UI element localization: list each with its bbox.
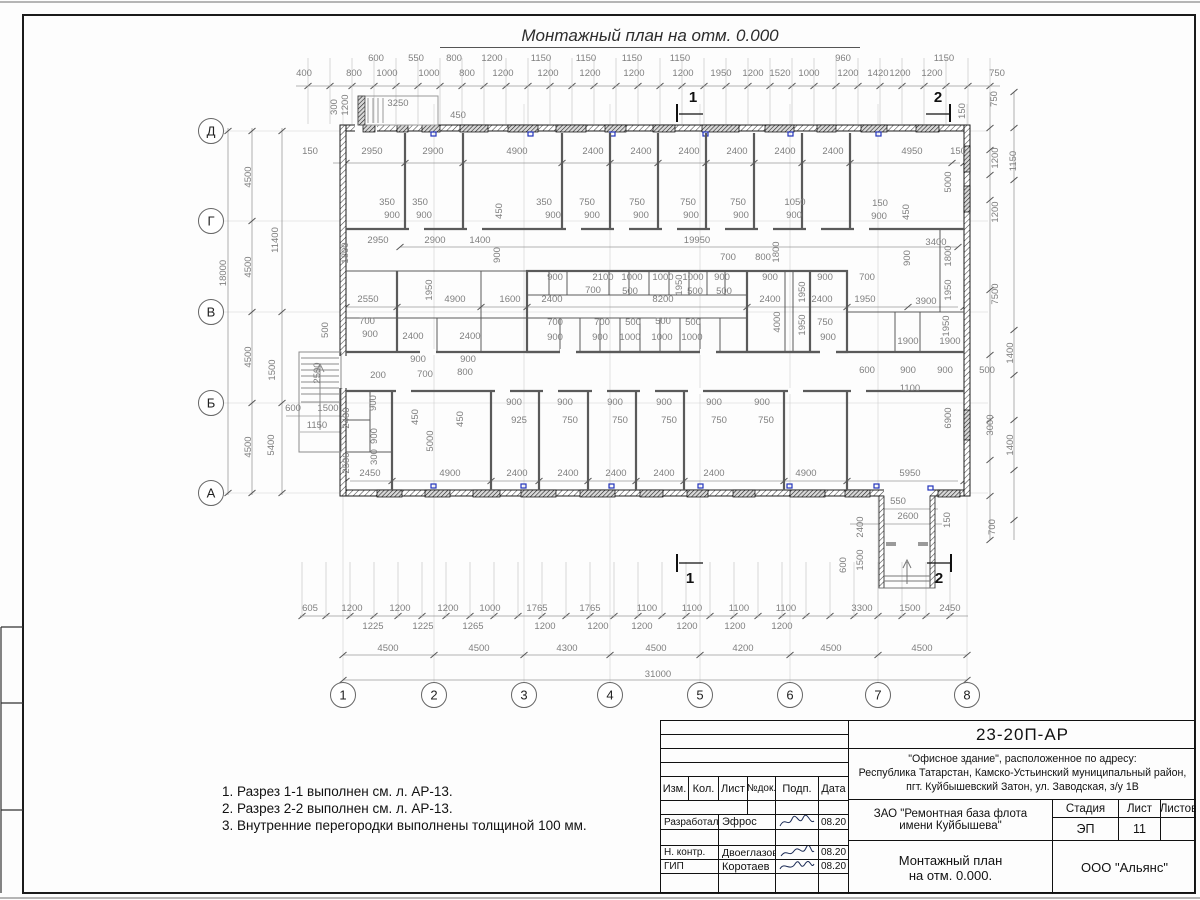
- dimension-label: 900: [786, 210, 802, 221]
- dimension-label: 2450: [359, 468, 380, 479]
- dimension-label: 2900: [424, 235, 445, 246]
- dimension-label: 200: [370, 370, 386, 381]
- dimension-label: 1500: [899, 603, 920, 614]
- dimension-label: 900: [633, 210, 649, 221]
- dimension-label: 450: [494, 203, 505, 219]
- signer-name: Эфрос: [719, 815, 776, 830]
- dimension-label: 1200: [389, 603, 410, 614]
- dimension-label: 900: [416, 210, 432, 221]
- dimension-label: 700: [720, 252, 736, 263]
- client-name: ЗАО "Ремонтная база флота имени Куйбышев…: [849, 800, 1053, 841]
- dimension-label: 900: [362, 329, 378, 340]
- dimension-label: 2400: [630, 146, 651, 157]
- signature-scribble: [778, 815, 816, 829]
- signature: [776, 846, 819, 860]
- dimension-label: 500: [622, 286, 638, 297]
- dimension-label: 3000: [985, 414, 996, 435]
- dimension-label: 900: [492, 247, 503, 263]
- stage-value: ЭП: [1053, 818, 1119, 841]
- dimension-label: 700: [594, 317, 610, 328]
- dimension-label: 1000: [652, 272, 673, 283]
- dimension-label: 1950: [943, 279, 954, 300]
- dimension-label: 1200: [990, 201, 1001, 222]
- dimension-label: 2400: [459, 331, 480, 342]
- dimension-label: 900: [754, 397, 770, 408]
- address-line: Республика Татарстан, Камско-Устьинский …: [859, 767, 1187, 781]
- signer-role: Н. контр.: [661, 846, 719, 860]
- dimension-label: 1600: [499, 294, 520, 305]
- axis-label: 1: [339, 688, 346, 703]
- dimension-label: 900: [900, 365, 916, 376]
- dimension-label: 1000: [376, 68, 397, 79]
- dimension-label: 1200: [742, 68, 763, 79]
- interior-partitions: [346, 133, 964, 490]
- signature-scribble: [778, 860, 816, 873]
- dimension-label: 4200: [732, 643, 753, 654]
- dimension-label: 2550: [357, 294, 378, 305]
- dimension-label: 1800: [771, 241, 782, 262]
- dimension-label: 1800: [340, 242, 351, 263]
- dimension-label: 900: [607, 397, 623, 408]
- dimension-label: 2400: [605, 468, 626, 479]
- dimension-label: 1200: [341, 603, 362, 614]
- signature-scribble: [778, 846, 816, 859]
- col-ndok: №док.: [748, 777, 776, 801]
- dimension-label: 1150: [670, 53, 690, 64]
- dimension-label: 700: [987, 519, 998, 535]
- dimension-label: 600: [838, 557, 849, 573]
- dimension-label: 4900: [795, 468, 816, 479]
- note-line: 3. Внутренние перегородки выполнены толщ…: [222, 818, 587, 835]
- dimension-label: 8200: [652, 294, 673, 305]
- dimension-label: 2400: [653, 468, 674, 479]
- dimension-label: 4500: [911, 643, 932, 654]
- dimension-label: 1400: [1005, 434, 1016, 455]
- dimension-label: 750: [730, 197, 746, 208]
- dimension-label: 5000: [943, 171, 954, 192]
- dimension-label: 1200: [990, 147, 1001, 168]
- dimension-label: 1200: [537, 68, 558, 79]
- dimension-label: 450: [901, 204, 912, 220]
- drawing-sheet: { "sheet": { "title": "Монтажный план на…: [0, 0, 1200, 900]
- dimension-label: 800: [457, 367, 473, 378]
- axis-label: 5: [696, 688, 703, 703]
- dimension-label: 4500: [645, 643, 666, 654]
- document-number: 23-20П-АР: [849, 721, 1196, 749]
- dimension-label: 1400: [1005, 342, 1016, 363]
- dimension-label: 900: [733, 210, 749, 221]
- dimension-label: 2400: [341, 407, 352, 428]
- axis-label: 2: [430, 688, 437, 703]
- signer-date: 08.20: [819, 860, 849, 874]
- dimension-label: 1225: [412, 621, 433, 632]
- dimension-label: 1950: [854, 294, 875, 305]
- dimension-label: 1000: [418, 68, 439, 79]
- dimension-label: 450: [410, 409, 421, 425]
- dimension-label: 900: [592, 332, 608, 343]
- plan-title: Монтажный план на отм. 0.000: [440, 26, 860, 48]
- dimension-label: 2400: [678, 146, 699, 157]
- dimension-label: 1000: [681, 332, 702, 343]
- dimension-label: 31000: [645, 669, 671, 680]
- signature: [776, 815, 819, 830]
- dimension-label: 900: [368, 395, 379, 411]
- dimension-label: 1800: [943, 245, 954, 266]
- signer-name: Коротаев: [719, 860, 776, 874]
- client-line: ЗАО "Ремонтная база флота: [874, 808, 1027, 820]
- sheets-header: Листов: [1161, 800, 1196, 818]
- dimension-label: 750: [989, 68, 1005, 79]
- section-mark-label: 1: [689, 89, 697, 106]
- dimension-label: 350: [379, 197, 395, 208]
- dimension-label: 2400: [855, 516, 866, 537]
- dimension-label: 750: [989, 91, 1000, 107]
- dimension-label: 1100: [682, 603, 702, 614]
- dimension-label: 900: [410, 354, 426, 365]
- note-line: 2. Разрез 2-2 выполнен см. л. АР-13.: [222, 801, 587, 818]
- dimension-label: 1100: [729, 603, 749, 614]
- dimension-label: 750: [579, 197, 595, 208]
- dimension-label: 1200: [579, 68, 600, 79]
- dimension-label: 1950: [674, 274, 685, 295]
- dimension-label: 900: [547, 332, 563, 343]
- dimension-label: 2400: [582, 146, 603, 157]
- notes-block: 1. Разрез 1-1 выполнен см. л. АР-13. 2. …: [222, 784, 587, 835]
- dimension-label: 2400: [402, 331, 423, 342]
- dimension-label: 700: [417, 369, 433, 380]
- dimension-label: 1765: [579, 603, 600, 614]
- dimension-label: 900: [714, 272, 730, 283]
- dimension-label: 3900: [915, 296, 936, 307]
- dimension-label: 1150: [531, 53, 551, 64]
- dimension-label: 2450: [939, 603, 960, 614]
- dimension-label: 700: [859, 272, 875, 283]
- dimension-label: 4500: [243, 166, 254, 187]
- dimension-label: 1200: [889, 68, 910, 79]
- address-line: "Офисное здание", расположенное по адрес…: [908, 753, 1136, 767]
- dimension-label: 1100: [637, 603, 657, 614]
- dimension-label: 150: [302, 146, 318, 157]
- dimension-label: 960: [835, 53, 851, 64]
- dimension-label: 900: [545, 210, 561, 221]
- dimension-label: 150: [872, 198, 888, 209]
- dimension-label: 1200: [921, 68, 942, 79]
- dimension-label: 1200: [534, 621, 555, 632]
- dimension-label: 4500: [243, 256, 254, 277]
- dimension-label: 750: [629, 197, 645, 208]
- dimension-label: 4500: [820, 643, 841, 654]
- dimension-label: 800: [459, 68, 475, 79]
- dimension-label: 900: [506, 397, 522, 408]
- dimension-label: 900: [384, 210, 400, 221]
- dimension-label: 500: [716, 286, 732, 297]
- dimension-label: 2600: [897, 511, 918, 522]
- signer-date: 08.20: [819, 815, 849, 830]
- dimension-label: 2100: [592, 272, 613, 283]
- dimension-label: 4500: [243, 346, 254, 367]
- col-izm: Изм.: [661, 777, 689, 801]
- dimension-label: 1265: [462, 621, 483, 632]
- dimension-label: 1200: [672, 68, 693, 79]
- dimension-label: 5950: [899, 468, 920, 479]
- dimension-label: 2950: [367, 235, 388, 246]
- signature: [776, 860, 819, 874]
- dimension-label: 750: [711, 415, 727, 426]
- dimension-label: 150: [942, 512, 953, 528]
- section-mark-label: 2: [934, 89, 942, 106]
- dimension-label: 1200: [676, 621, 697, 632]
- dimension-label: 2400: [506, 468, 527, 479]
- dimension-label: 18000: [218, 260, 229, 286]
- dimension-label: 900: [547, 272, 563, 283]
- dimension-label: 1200: [340, 94, 351, 115]
- dimension-label: 1150: [307, 420, 327, 431]
- dimension-label: 1500: [855, 549, 866, 570]
- dimension-label: 1200: [437, 603, 458, 614]
- door-markers: [431, 132, 933, 490]
- dimension-label: 4900: [439, 468, 460, 479]
- dimension-label: 1100: [776, 603, 796, 614]
- dimension-label: 925: [511, 415, 527, 426]
- dimension-label: 350: [412, 197, 428, 208]
- dimension-label: 600: [859, 365, 875, 376]
- dimension-label: 1000: [651, 332, 672, 343]
- dimension-label: 4300: [556, 643, 577, 654]
- dimension-label: 2900: [422, 146, 443, 157]
- dimension-label: 1150: [934, 53, 954, 64]
- dimension-label: 1520: [769, 68, 790, 79]
- dimension-label: 900: [369, 428, 380, 444]
- dimension-label: 1200: [771, 621, 792, 632]
- col-list: Лист: [719, 777, 748, 801]
- sheets-value: [1161, 818, 1196, 841]
- dimension-label: 4500: [377, 643, 398, 654]
- dimension-label: 1050: [784, 197, 805, 208]
- axis-label: А: [207, 486, 216, 501]
- windows: [363, 125, 970, 497]
- dimension-label: 605: [302, 603, 318, 614]
- dimension-label: 500: [685, 317, 701, 328]
- dimension-label: 900: [656, 397, 672, 408]
- dimension-label: 1400: [469, 235, 490, 246]
- dimension-label: 1900: [939, 336, 960, 347]
- dimension-label: 1150: [1008, 151, 1019, 171]
- dimension-label: 600: [285, 403, 301, 414]
- dimension-label: 750: [680, 197, 696, 208]
- dimension-label: 1000: [619, 332, 640, 343]
- dimension-label: 800: [755, 252, 771, 263]
- dimension-label: 4000: [772, 311, 783, 332]
- axis-label: Д: [207, 124, 216, 139]
- dimension-label: 1200: [481, 53, 502, 64]
- dimension-label: 1900: [897, 336, 918, 347]
- company-name: ООО "Альянс": [1053, 841, 1196, 894]
- dimension-label: 900: [871, 211, 887, 222]
- dimension-label: 900: [584, 210, 600, 221]
- section-mark-label: 2: [935, 570, 943, 587]
- dimension-label: 2500: [341, 452, 352, 473]
- dimension-label: 11400: [270, 227, 281, 253]
- dimension-label: 500: [320, 322, 331, 338]
- title-block: Изм. Кол. Лист №док. Подп. Дата Разработ…: [660, 720, 1195, 893]
- dimension-label: 1150: [576, 53, 596, 64]
- dimension-label: 500: [655, 316, 671, 327]
- drawing-title: Монтажный план на отм. 0.000.: [849, 841, 1053, 894]
- dimension-label: 300: [369, 449, 380, 465]
- dimension-label: 6900: [943, 407, 954, 428]
- dimension-label: 500: [687, 286, 703, 297]
- dimension-label: 500: [979, 365, 995, 376]
- dimension-label: 900: [902, 250, 913, 266]
- dimension-label: 2400: [759, 294, 780, 305]
- dimension-label: 4500: [468, 643, 489, 654]
- dimension-label: 4950: [901, 146, 922, 157]
- dimension-label: 2400: [811, 294, 832, 305]
- dimension-label: 300: [329, 99, 340, 115]
- client-line: имени Куйбышева": [899, 820, 1002, 832]
- axis-label: Б: [207, 396, 216, 411]
- axis-label: 6: [786, 688, 793, 703]
- dimension-label: 1950: [797, 281, 808, 302]
- col-kol: Кол.: [689, 777, 719, 801]
- dimension-label: 4500: [243, 436, 254, 457]
- signer-name: Двоеглазов: [719, 846, 776, 860]
- sheet-value: 11: [1119, 818, 1161, 841]
- col-data: Дата: [819, 777, 849, 801]
- dimension-label: 900: [820, 332, 836, 343]
- dimension-label: 550: [890, 496, 906, 507]
- dimension-label: 150: [957, 103, 968, 119]
- dimension-label: 19950: [684, 235, 710, 246]
- drawing-title-line: Монтажный план: [899, 853, 1003, 868]
- dimension-label: 900: [937, 365, 953, 376]
- dimension-label: 900: [762, 272, 778, 283]
- dimension-label: 900: [683, 210, 699, 221]
- axis-label: 3: [520, 688, 527, 703]
- dimension-label: 1500: [317, 403, 338, 414]
- dimension-label: 3300: [851, 603, 872, 614]
- signer-role: Разработал: [661, 815, 719, 830]
- dimension-label: 1200: [623, 68, 644, 79]
- dimension-label: 450: [450, 110, 466, 121]
- dimension-label: 750: [661, 415, 677, 426]
- dimension-label: 900: [706, 397, 722, 408]
- left-margin-stamp-boxes: [1, 627, 23, 893]
- dimension-label: 750: [817, 317, 833, 328]
- dimension-label: 1000: [798, 68, 819, 79]
- dimension-label: 2400: [822, 146, 843, 157]
- dimension-label: 2400: [541, 294, 562, 305]
- dimension-label: 1200: [724, 621, 745, 632]
- dimension-label: 1200: [631, 621, 652, 632]
- dimension-label: 1950: [941, 315, 952, 336]
- address-line: пгт. Куйбышевский Затон, ул. Заводская, …: [906, 781, 1139, 795]
- dimension-label: 1200: [587, 621, 608, 632]
- dimension-label: 1765: [526, 603, 547, 614]
- dimension-label: 1950: [424, 279, 435, 300]
- dimension-label: 1420: [867, 68, 888, 79]
- dimension-label: 450: [455, 411, 466, 427]
- dimension-label: 900: [557, 397, 573, 408]
- dimension-label: 1950: [797, 314, 808, 335]
- dimension-label: 7500: [990, 283, 1001, 304]
- dimension-label: 350: [536, 197, 552, 208]
- dimension-label: 800: [346, 68, 362, 79]
- dimension-label: 400: [296, 68, 312, 79]
- dimension-label: 4900: [506, 146, 527, 157]
- dimension-label: 1225: [362, 621, 383, 632]
- dimension-label: 1200: [837, 68, 858, 79]
- dimension-label: 2400: [703, 468, 724, 479]
- drawing-title-line: на отм. 0.000.: [909, 868, 992, 883]
- dimension-label: 1000: [479, 603, 500, 614]
- axis-label: В: [207, 305, 216, 320]
- dimension-label: 1150: [622, 53, 642, 64]
- signer-role: ГИП: [661, 860, 719, 874]
- axis-label: Г: [207, 214, 214, 229]
- sheet-header: Лист: [1119, 800, 1161, 818]
- dimension-label: 5000: [425, 430, 436, 451]
- dimension-label: 750: [758, 415, 774, 426]
- dimension-label: 2400: [557, 468, 578, 479]
- dimension-label: 2500: [312, 362, 323, 383]
- axis-label: 7: [874, 688, 881, 703]
- dimension-label: 700: [547, 317, 563, 328]
- dimension-label: 5400: [266, 434, 277, 455]
- dimension-label: 1000: [621, 272, 642, 283]
- dimension-label: 500: [625, 317, 641, 328]
- dimension-label: 550: [408, 53, 424, 64]
- dimension-label: 3250: [387, 98, 408, 109]
- dimension-label: 1000: [682, 272, 703, 283]
- dimension-label: 1200: [492, 68, 513, 79]
- dimension-label: 900: [817, 272, 833, 283]
- dimension-label: 700: [585, 285, 601, 296]
- stage-header: Стадия: [1053, 800, 1119, 818]
- dimension-label: 1950: [710, 68, 731, 79]
- axis-label: 4: [606, 688, 613, 703]
- dimension-label: 700: [359, 316, 375, 327]
- axis-label: 8: [963, 688, 970, 703]
- dimension-label: 2400: [774, 146, 795, 157]
- dimension-label: 150: [950, 146, 966, 157]
- dimension-label: 1500: [267, 359, 278, 380]
- note-line: 1. Разрез 1-1 выполнен см. л. АР-13.: [222, 784, 587, 801]
- dimension-label: 800: [446, 53, 462, 64]
- signer-date: 08.20: [819, 846, 849, 860]
- dimension-label: 2400: [726, 146, 747, 157]
- dimension-label: 750: [612, 415, 628, 426]
- dimension-label: 900: [460, 354, 476, 365]
- section-mark-label: 1: [686, 570, 694, 587]
- dimension-label: 600: [368, 53, 384, 64]
- col-podp: Подп.: [776, 777, 819, 801]
- dimension-label: 4900: [444, 294, 465, 305]
- entrance-porch: [879, 496, 935, 588]
- dimension-label: 750: [562, 415, 578, 426]
- project-address: "Офисное здание", расположенное по адрес…: [849, 749, 1196, 800]
- dimension-label: 1100: [900, 383, 920, 394]
- dimension-label: 2950: [361, 146, 382, 157]
